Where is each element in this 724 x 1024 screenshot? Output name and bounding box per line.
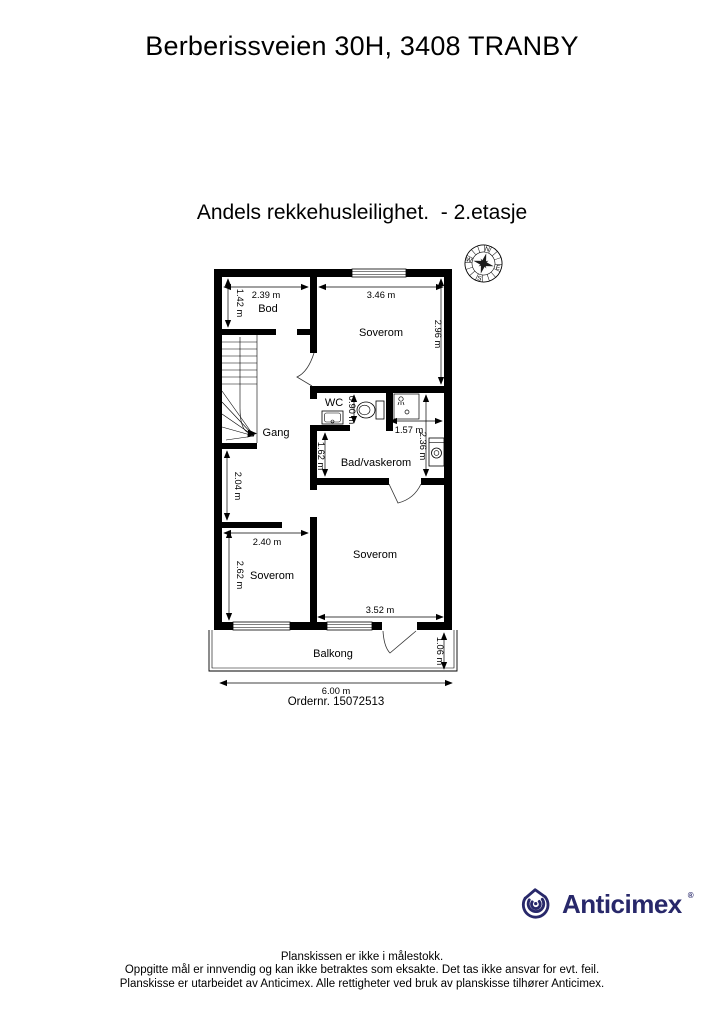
dimension-label: 2.40 m (253, 537, 282, 547)
toilet-icon (357, 401, 384, 419)
window-bottom-left (233, 622, 290, 630)
dimension-label: 2.62 m (235, 561, 245, 590)
registered-mark: ® (688, 891, 694, 900)
sink-icon (322, 411, 343, 424)
washing-machine-icon (429, 438, 444, 466)
dimension-label: 1.06 m (435, 637, 445, 666)
anticimex-logo-text: Anticimex (562, 889, 682, 920)
dimension-label: 3.46 m (367, 290, 396, 300)
compass-rose: N E S W (461, 241, 507, 287)
floor-plan-page: Berberissveien 30H, 3408 TRANBY Andels r… (0, 0, 724, 1024)
dimension-label: 1.62 m (316, 442, 326, 471)
dimension-label: 2.96 m (433, 320, 443, 349)
anticimex-swirl-icon (519, 884, 557, 924)
anticimex-logo: Anticimex® (519, 884, 693, 924)
room-label-wc: WC (325, 397, 343, 409)
shower-icon (394, 394, 419, 419)
room-label-bod: Bod (258, 303, 278, 315)
disclaimer-footer: Planskissen er ikke i målestokk. Oppgitt… (0, 951, 724, 991)
compass-north-label: N (484, 246, 491, 254)
floor-plan-drawing: N E S W (0, 0, 724, 1024)
door-soverom-top (297, 353, 314, 386)
staircase (222, 335, 257, 443)
dimension-annotations: 2.39 m 1.42 m 3.46 m 2.96 m 0.90 m 1.57 … (220, 279, 452, 696)
dimension-label: 2.36 m (418, 432, 428, 461)
dimension-label: 6.00 m (322, 686, 351, 696)
window-bottom-right (327, 622, 372, 630)
order-number: Ordernr. 15072513 (0, 696, 672, 708)
door-balcony (383, 631, 416, 653)
disclaimer-line: Planskisse er utarbeidet av Anticimex. A… (0, 978, 724, 991)
room-label-bad-vaskerom: Bad/vaskerom (341, 457, 411, 469)
room-label-gang: Gang (263, 427, 290, 439)
disclaimer-line: Oppgitte mål er innvendig og kan ikke be… (0, 964, 724, 977)
dimension-label: 2.04 m (233, 472, 243, 501)
room-label-soverom-top: Soverom (359, 327, 403, 339)
disclaimer-line: Planskissen er ikke i målestokk. (0, 951, 724, 964)
dimension-label: 2.39 m (252, 290, 281, 300)
dimension-label: 3.52 m (366, 605, 395, 615)
room-label-soverom-left: Soverom (250, 570, 294, 582)
room-label-balkong: Balkong (313, 648, 353, 660)
dimension-label: 0.90 m (347, 396, 357, 425)
door-bad (389, 484, 421, 503)
dimension-label: 1.42 m (235, 289, 245, 318)
room-label-soverom-right: Soverom (353, 549, 397, 561)
window-top (352, 269, 406, 277)
